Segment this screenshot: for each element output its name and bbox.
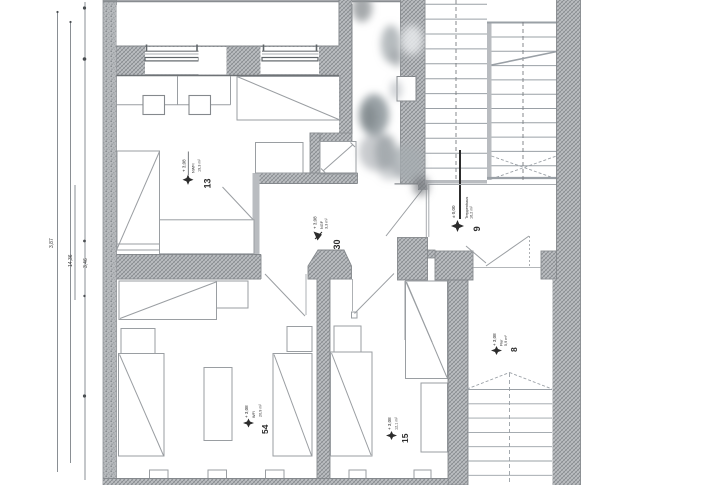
svg-text:3,46: 3,46 (83, 258, 89, 268)
svg-text:8: 8 (509, 347, 519, 352)
svg-text:3,87: 3,87 (49, 238, 55, 248)
svg-text:14,36: 14,36 (68, 254, 74, 267)
svg-text:Treppenhaus: Treppenhaus (465, 197, 469, 219)
svg-text:12,1 m²: 12,1 m² (395, 416, 399, 430)
svg-text:NWFl: NWFl (192, 163, 196, 173)
svg-text:16,2 m²: 16,2 m² (470, 205, 474, 219)
svg-text:± 0,00: ± 0,00 (451, 205, 456, 218)
svg-text:NGF: NGF (320, 220, 324, 229)
svg-text:Flur: Flur (500, 339, 504, 346)
svg-text:5,9 m²: 5,9 m² (504, 335, 508, 346)
svg-text:19,3 m²: 19,3 m² (198, 158, 202, 172)
svg-text:3,3 m²: 3,3 m² (325, 218, 329, 229)
svg-text:13: 13 (203, 178, 213, 188)
svg-text:+ 3,08: + 3,08 (492, 333, 497, 346)
svg-text:20,9 m²: 20,9 m² (259, 403, 263, 417)
svg-text:30: 30 (332, 239, 342, 249)
svg-text:+ 3,08: + 3,08 (387, 417, 392, 430)
svg-text:54: 54 (260, 424, 270, 434)
svg-text:+ 3,08: + 3,08 (313, 216, 318, 229)
svg-text:+ 3,08: + 3,08 (182, 159, 187, 172)
svg-text:+ 3,08: + 3,08 (244, 405, 249, 418)
svg-text:15: 15 (400, 433, 410, 443)
svg-text:9: 9 (472, 226, 483, 231)
svg-text:WFl: WFl (252, 411, 256, 418)
